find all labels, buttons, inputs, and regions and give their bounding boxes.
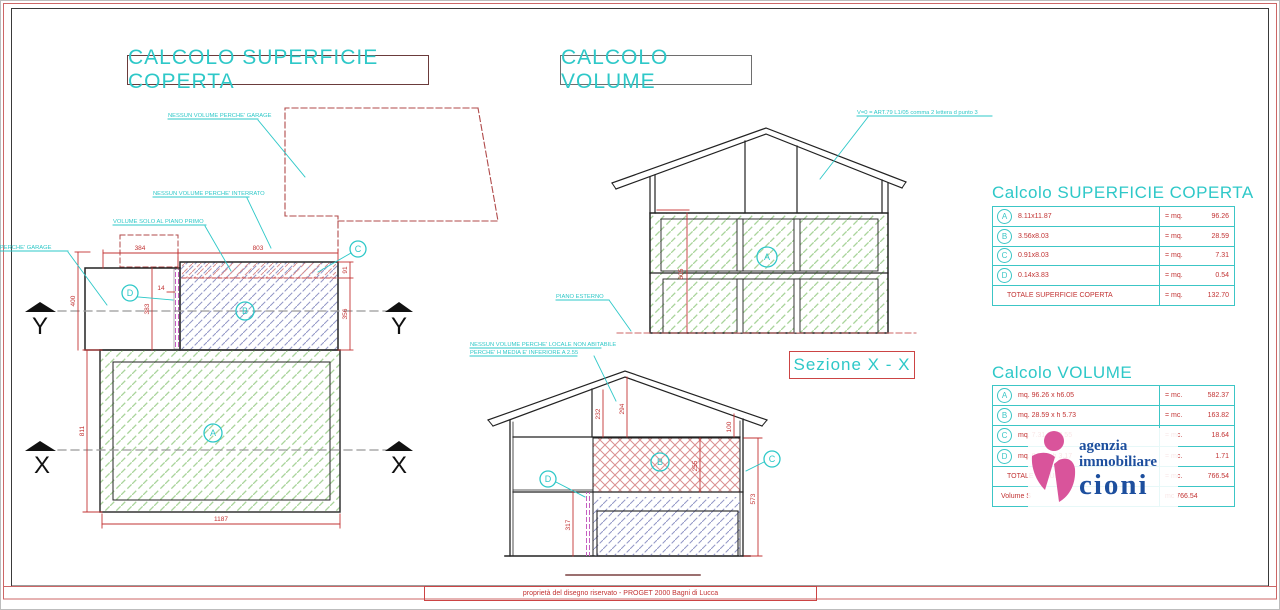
dim-811: 811 (79, 425, 86, 436)
dim-803: 803 (253, 245, 264, 252)
row-formula: 8.11x11.87 (1018, 213, 1159, 220)
row-formula: 0.91x8.03 (1018, 252, 1159, 259)
dim-356: 356 (342, 308, 349, 319)
dim-91: 91 (342, 266, 349, 274)
axis-arrow (385, 302, 413, 312)
main-title-volume: CALCOLO VOLUME (560, 55, 752, 85)
logo-line2: immobiliare (1079, 454, 1157, 470)
section-xx: 605 A PIANO ESTERNO V=0 = ART.79 L1/05 c… (556, 110, 992, 333)
row-formula: 3.56x8.03 (1018, 233, 1159, 240)
table-row: A mq. 96.26 x h6.05 = mc.582.37 (993, 386, 1234, 405)
row-mark: D (997, 268, 1012, 283)
note-v0: V=0 = ART.79 L1/05 comma 2 lettera d pun… (857, 110, 978, 116)
plan-notes: NESSUN VOLUME PERCHE' GARAGE NESSUN VOLU… (0, 113, 272, 251)
table-title-superficie: Calcolo SUPERFICIE COPERTA (992, 183, 1254, 203)
note-interrato: NESSUN VOLUME PERCHE' INTERRATO (153, 191, 265, 197)
row-value: 96.26 (1211, 213, 1229, 220)
row-mark: C (997, 248, 1012, 263)
marker-d-section: D (545, 474, 552, 484)
main-title-superficie-text: CALCOLO SUPERFICIE COPERTA (128, 46, 428, 94)
note-non-abitabile-2: PERCHE' H MEDIA E' INFERIORE A 2.55 (470, 350, 578, 356)
table-row: B mq. 28.59 x h 5.73 = mc.163.82 (993, 405, 1234, 425)
total-value: 132.70 (1208, 292, 1229, 299)
row-mark: C (997, 428, 1012, 443)
marker-c: C (355, 244, 362, 254)
row-value: 7.31 (1215, 252, 1229, 259)
dim-14: 14 (157, 285, 165, 292)
row-mark: D (997, 449, 1012, 464)
marker-b: B (242, 306, 248, 316)
axis-arrow (25, 302, 56, 312)
total-value: 766.54 (1208, 473, 1229, 480)
dim-100: 100 (726, 421, 733, 432)
dim-400: 400 (70, 295, 77, 306)
dim-605: 605 (678, 268, 685, 279)
plan-area-d-strip (174, 269, 180, 349)
row-unit: = mq. (1165, 272, 1183, 279)
agency-logo-text: agenzia immobiliare cioni (1079, 438, 1157, 500)
row-value: 28.59 (1211, 233, 1229, 240)
row-mark: A (997, 388, 1012, 403)
table-superficie: A 8.11x11.87 = mq.96.26 B 3.56x8.03 = mq… (992, 206, 1235, 306)
table-total-row: TOTALE SUPERFICIE COPERTA = mq.132.70 (993, 285, 1234, 305)
section-yy-notes: NESSUN VOLUME PERCHE' LOCALE NON ABITABI… (470, 342, 616, 401)
footer-title-block: proprietà del disegno riservato - PROGET… (424, 586, 817, 601)
section-xx-title-text: Sezione X - X (794, 355, 911, 375)
axis-label-x-right: X (391, 452, 407, 479)
table-row: A 8.11x11.87 = mq.96.26 (993, 207, 1234, 226)
marker-d: D (127, 288, 134, 298)
plan-area-a (100, 350, 340, 512)
table-row: B 3.56x8.03 = mq.28.59 (993, 226, 1234, 246)
row-unit: = mq. (1165, 213, 1183, 220)
row-formula: 0.14x3.83 (1018, 272, 1159, 279)
section-yy-area-b (593, 438, 740, 492)
row-mark: B (997, 229, 1012, 244)
axis-label-y-left: Y (32, 313, 48, 340)
row-value: 163.82 (1208, 412, 1229, 419)
section-yy-garage-hatch (593, 497, 740, 556)
plan-garage-room (85, 268, 180, 350)
note-non-abitabile-1: NESSUN VOLUME PERCHE' LOCALE NON ABITABI… (470, 342, 616, 348)
dim-232: 232 (595, 408, 602, 419)
section-yy: 232 294 100 255 573 317 B C D NESSUN VOL… (470, 342, 780, 575)
marker-b-section: B (657, 457, 663, 467)
dim-1187: 1187 (214, 516, 228, 523)
note-piano-esterno: PIANO ESTERNO (556, 294, 604, 300)
roof-posts (650, 141, 888, 213)
axis-label-x-left: X (34, 452, 50, 479)
dim-384: 384 (135, 245, 146, 252)
row-unit: = mq. (1165, 252, 1183, 259)
total-label: TOTALE SUPERFICIE COPERTA (993, 292, 1159, 299)
dim-573: 573 (750, 493, 757, 504)
row-unit: = mc. (1165, 412, 1182, 419)
agency-logo-figure (1028, 428, 1076, 504)
garage-outline-dashed (285, 108, 498, 251)
row-unit: = mc. (1165, 392, 1182, 399)
interrato-outline-dashed (120, 235, 178, 267)
dim-255: 255 (692, 460, 699, 471)
footer-text: proprietà del disegno riservato - PROGET… (523, 590, 718, 597)
row-mark: B (997, 408, 1012, 423)
logo-line1: agenzia (1079, 438, 1157, 454)
row-mark: A (997, 209, 1012, 224)
axis-arrow (25, 441, 56, 451)
row-value: 0.54 (1215, 272, 1229, 279)
table-row: D 0.14x3.83 = mq.0.54 (993, 265, 1234, 285)
row-value: 582.37 (1208, 392, 1229, 399)
table-title-volume: Calcolo VOLUME (992, 363, 1132, 383)
axis-label-y-right: Y (391, 313, 407, 340)
row-formula: mq. 28.59 x h 5.73 (1018, 412, 1159, 419)
note-piano-primo: VOLUME SOLO AL PIANO PRIMO (113, 219, 204, 225)
drawing-sheet: Y Y X X 384 803 (0, 0, 1280, 610)
row-unit: = mq. (1165, 233, 1183, 240)
marker-c-section: C (769, 454, 776, 464)
floor-plan: Y Y X X 384 803 (0, 108, 498, 528)
row-value: 18.64 (1211, 432, 1229, 439)
plan-area-c-strip (182, 263, 336, 278)
main-title-volume-text: CALCOLO VOLUME (561, 46, 751, 94)
dim-383: 383 (144, 303, 151, 314)
section-xx-title: Sezione X - X (789, 351, 915, 379)
note-garage-left: NESSUN VOLUME PERCHE' GARAGE (0, 245, 52, 251)
row-formula: mq. 96.26 x h6.05 (1018, 392, 1159, 399)
row-value: 1.71 (1215, 453, 1229, 460)
dim-294: 294 (619, 403, 626, 414)
note-garage: NESSUN VOLUME PERCHE' GARAGE (168, 113, 272, 119)
table-row: C 0.91x8.03 = mq.7.31 (993, 246, 1234, 266)
marker-a: A (210, 428, 216, 438)
main-title-superficie: CALCOLO SUPERFICIE COPERTA (127, 55, 429, 85)
agency-logo: agenzia immobiliare cioni (1028, 428, 1178, 507)
section-yy-area-d-strip (586, 492, 591, 556)
marker-a-section: A (764, 252, 770, 262)
logo-line3: cioni (1079, 470, 1157, 500)
dim-317: 317 (565, 519, 572, 530)
axis-arrow (385, 441, 413, 451)
total-unit: = mq. (1165, 292, 1183, 299)
